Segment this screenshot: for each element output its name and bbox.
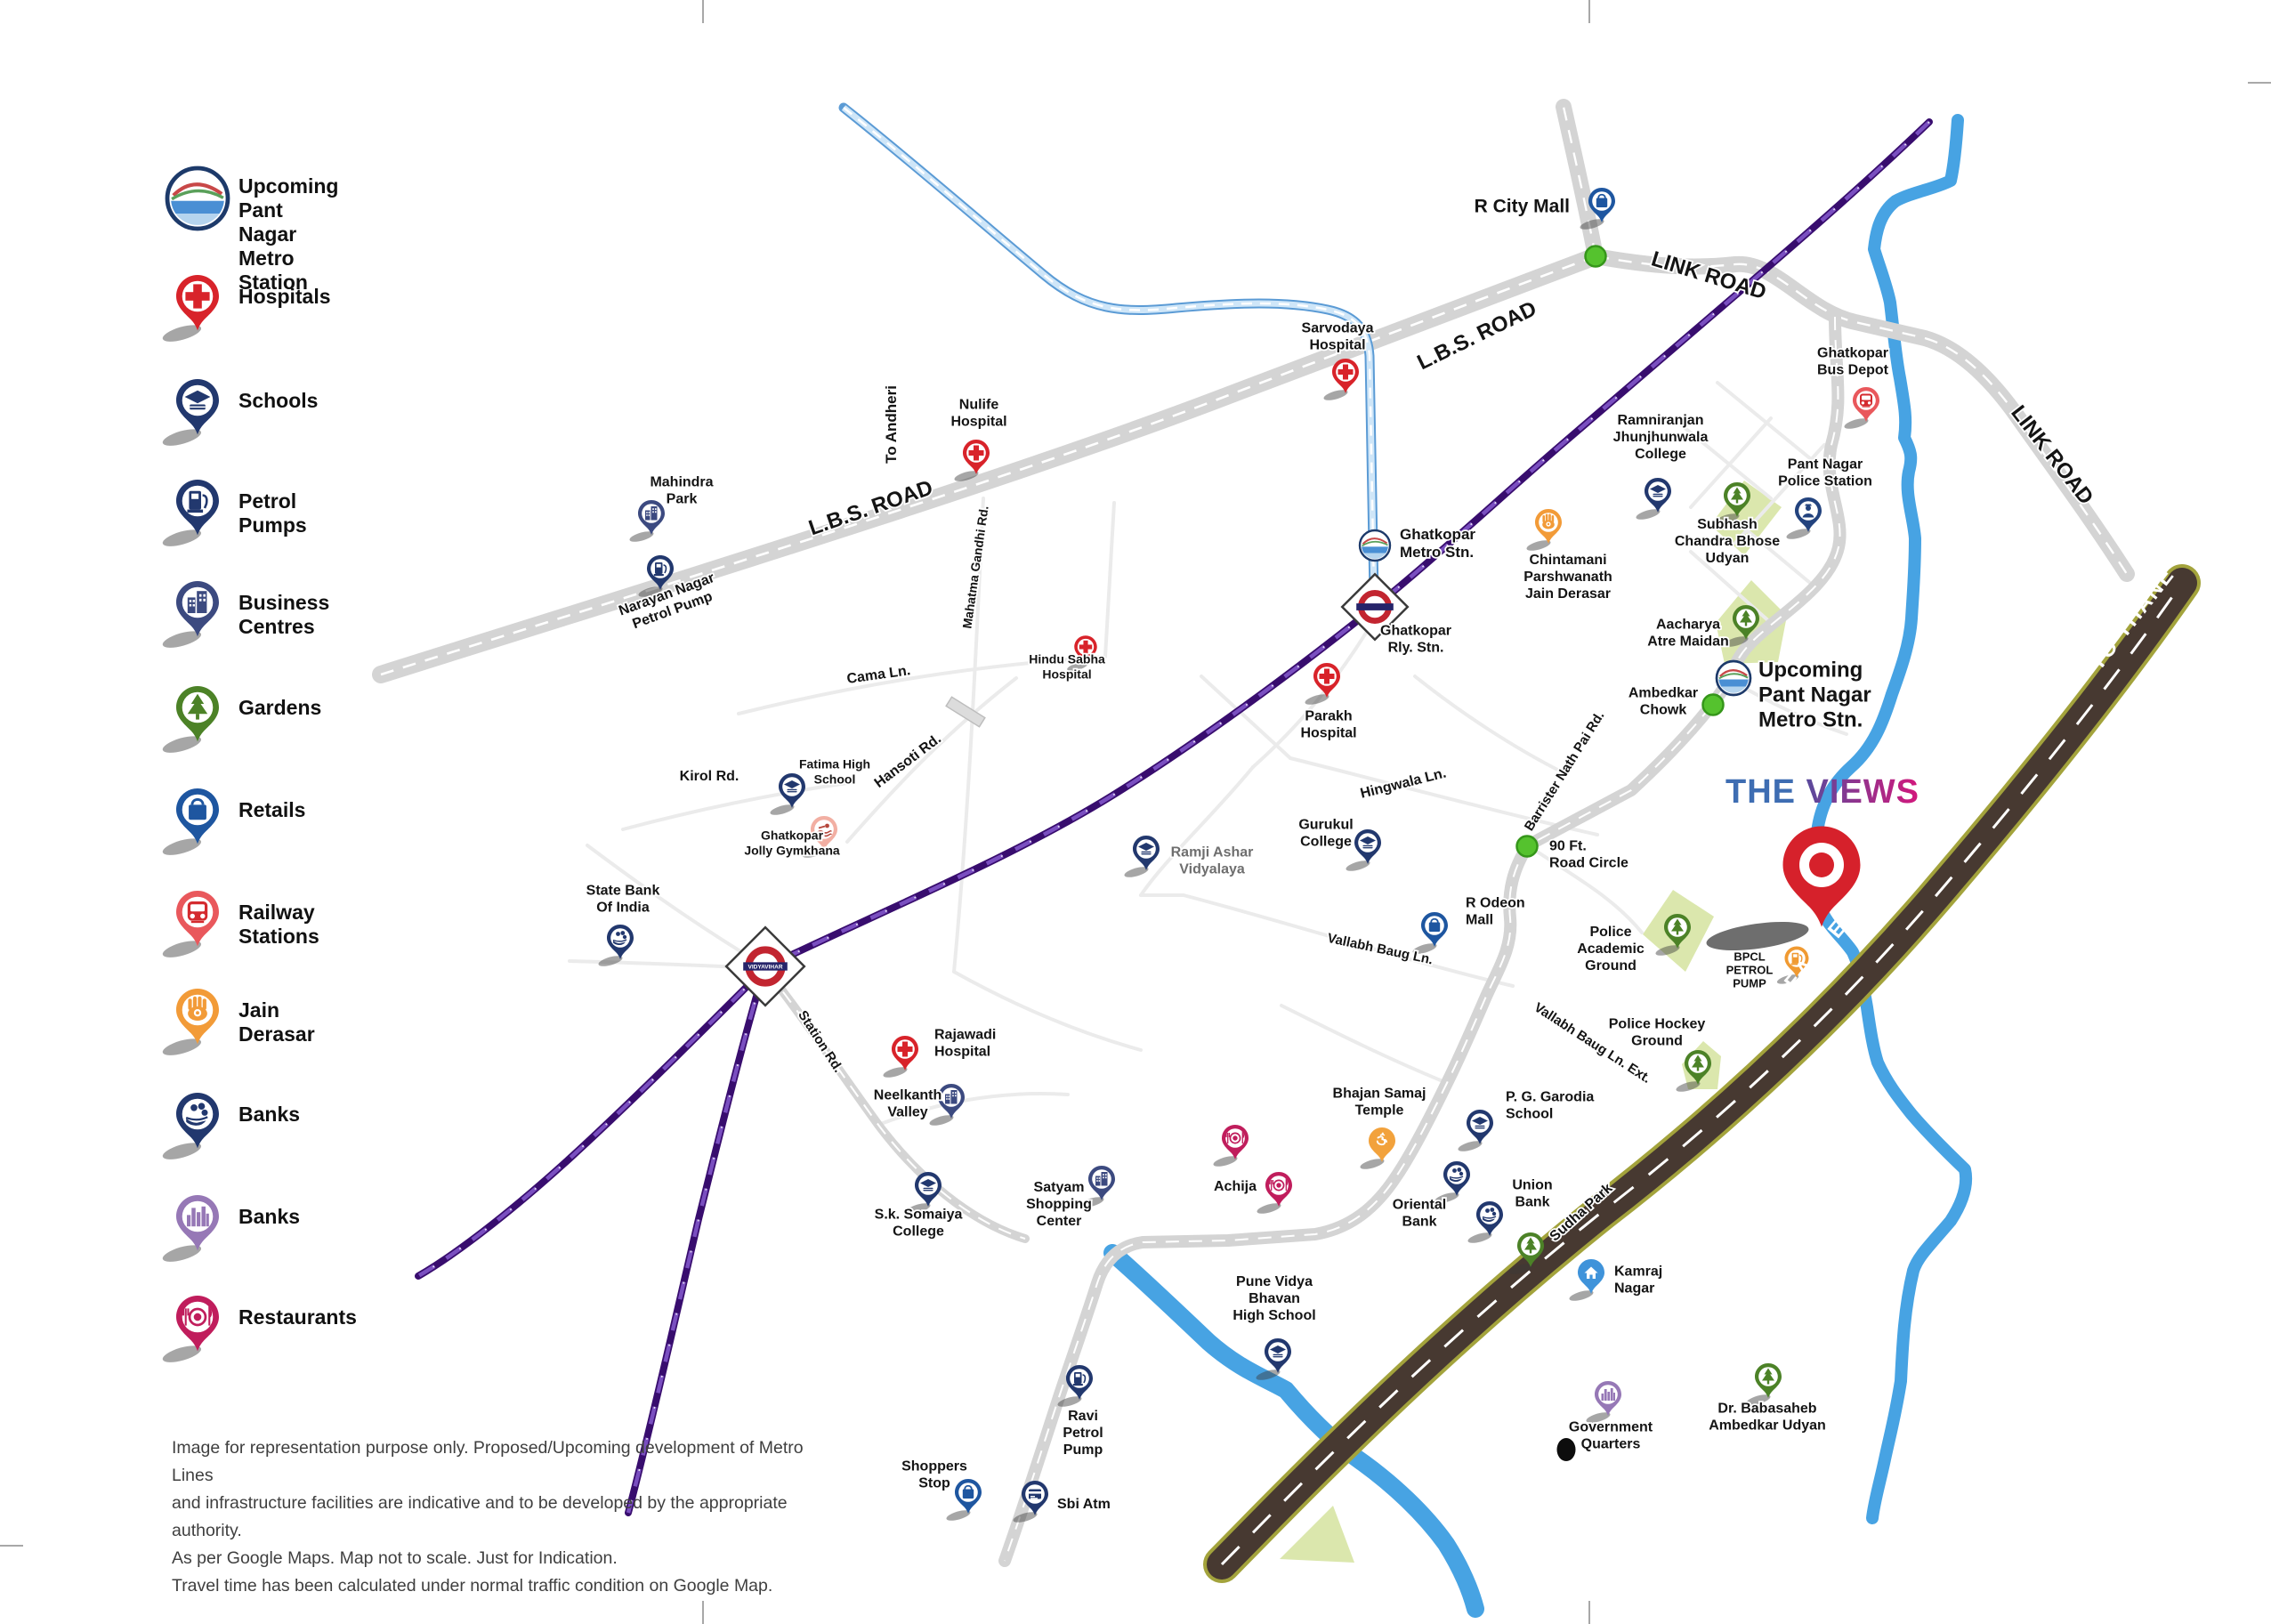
- mahindra-park-pin: [628, 500, 665, 544]
- legend-item-label: Banks: [238, 1205, 300, 1229]
- ambedkar-chowk-label: AmbedkarChowk: [1628, 685, 1698, 717]
- achija-pin: [1212, 1125, 1249, 1168]
- upcoming-pant-nagar-metro-stn-label: UpcomingPant NagarMetro Stn.: [1758, 658, 1871, 732]
- minor-street: [1415, 676, 1566, 774]
- metro-line-1-casing: [844, 108, 1374, 594]
- 90-ft-road-circle-dot: [1517, 836, 1538, 857]
- legend-banks-pin: [161, 1093, 219, 1163]
- police-hockey-ground-label: Police HockeyGround: [1609, 1016, 1706, 1048]
- legend-business-centres-icon: [149, 553, 246, 651]
- chintamani-parshwanath-jain-derasar-label: ChintamaniParshwanathJain Derasar: [1523, 553, 1612, 602]
- rajawadi-hospital-pin: [882, 1036, 918, 1079]
- legend-retails-icon: [149, 761, 246, 859]
- legend-banks-2-pin: [161, 1195, 219, 1265]
- ramniranjan-jhunjhunwala-college-pin: [1635, 478, 1671, 521]
- map: VIDYAVIHAR R City Mall SarvodayaHospital…: [0, 0, 2271, 1624]
- sk-somaiya-college-label: S.k. SomaiyaCollege: [875, 1207, 963, 1239]
- legend-railway-stations-icon: [149, 863, 246, 961]
- railway-branch-south: [628, 972, 764, 1513]
- bpcl-petrol-pump-label: BPCLPETROLPUMP: [1726, 950, 1774, 990]
- location-map-canvas: VIDYAVIHAR R City Mall SarvodayaHospital…: [0, 0, 2271, 1624]
- legend-gardens-icon: [149, 658, 246, 756]
- logo-views: VIEWS: [1806, 773, 1919, 811]
- kamraj-nagar-pin: [1568, 1259, 1604, 1303]
- legend-hospitals-pin: [161, 275, 219, 345]
- fatima-high-school-label: Fatima HighSchool: [799, 757, 870, 787]
- disclaimer-line: As per Google Maps. Map not to scale. Ju…: [172, 1545, 812, 1572]
- satyam-shopping-center-label: SatyamShoppingCenter: [1026, 1180, 1092, 1229]
- svg-text:VIDYAVIHAR: VIDYAVIHAR: [748, 964, 782, 970]
- achija-label: Achija: [1214, 1179, 1257, 1194]
- bhajan-samaj-temple-label: Bhajan SamajTemple: [1333, 1086, 1426, 1118]
- ramji-ashar-vidyalaya-pin: [1123, 836, 1160, 879]
- legend-item-label: Gardens: [238, 696, 321, 720]
- sbi-atm-label: Sbi Atm: [1057, 1497, 1111, 1512]
- bhajan-samaj-temple-pin: [1359, 1127, 1395, 1171]
- ramji-ashar-vidyalaya-label: Ramji AsharVidyalaya: [1171, 844, 1254, 877]
- disclaimer-text: Image for representation purpose only. P…: [172, 1434, 812, 1600]
- r-city-mall-label: R City Mall: [1475, 197, 1570, 217]
- ghatkopar-bus-depot-label: GhatkoparBus Depot: [1817, 345, 1889, 377]
- road-label: Station Rd.: [795, 1008, 845, 1076]
- government-quarters-dot: [1557, 1438, 1576, 1461]
- ghatkopar-bus-depot-pin: [1843, 387, 1879, 431]
- road-label: Vallabh Baug Ln.: [1326, 931, 1435, 968]
- government-quarters-label: GovernmentQuarters: [1569, 1419, 1653, 1451]
- road-label: Kirol Rd.: [680, 769, 739, 784]
- mahindra-park-label: MahindraPark: [650, 474, 713, 506]
- ghatkopar-metro-stn-label: GhatkoparMetro Stn.: [1400, 526, 1475, 561]
- ambedkar-chowk-dot: [1703, 695, 1724, 715]
- minor-street: [1281, 1006, 1447, 1083]
- legend-item-label: Hospitals: [238, 285, 331, 309]
- railway-branch-west-dots: [418, 966, 767, 1276]
- legend-railway-stations-pin: [161, 891, 219, 961]
- dr-babasaheb-ambedkar-udyan-label: Dr. BabasahebAmbedkar Udyan: [1709, 1401, 1826, 1433]
- legend-item-label: Upcoming Pant NagarMetro Station: [238, 174, 338, 295]
- legend-item-label: Railway Stations: [238, 901, 319, 949]
- disclaimer-line: and infrastructure facilities are indica…: [172, 1490, 812, 1545]
- rajawadi-hospital-label: RajawadiHospital: [934, 1027, 996, 1059]
- legend-gardens-pin: [161, 686, 219, 756]
- legend-metro-icon: [167, 168, 228, 229]
- minor-street: [1253, 618, 1375, 767]
- legend-restaurants-icon: [149, 1268, 246, 1366]
- gurukul-college-label: GurukulCollege: [1298, 817, 1353, 849]
- pune-vidya-bhavan-high-school-label: Pune VidyaBhavanHigh School: [1232, 1274, 1315, 1323]
- minor-street: [847, 678, 1016, 842]
- legend-petrol-pumps-pin: [161, 480, 219, 550]
- hindu-sabha-hospital-label: Hindu SabhaHospital: [1029, 652, 1105, 682]
- legend-schools-icon: [149, 351, 246, 449]
- metro-line-1-dash: [844, 108, 1374, 594]
- shoppers-stop-pin: [945, 1479, 982, 1523]
- union-bank-label: UnionBank: [1512, 1177, 1552, 1209]
- road-label: To Andheri: [883, 385, 900, 464]
- union-bank-pin: [1467, 1201, 1503, 1245]
- metro-line-1: [844, 108, 1374, 594]
- disclaimer-line: Travel time has been calculated under no…: [172, 1572, 812, 1600]
- road-label: Mahatma Gandhi Rd.: [959, 505, 990, 629]
- lbs-road: [381, 256, 1596, 675]
- state-bank-of-india-label: State BankOf India: [586, 883, 660, 915]
- lbs-link-junction: [1586, 246, 1606, 267]
- minor-street: [1201, 676, 1290, 758]
- road-label: LINK ROAD: [1648, 246, 1768, 304]
- the-views-logo: THE VIEWS: [1676, 773, 1969, 812]
- aacharya-atre-maidan-label: AacharyaAtre Maidan: [1647, 617, 1729, 649]
- achija-2-pin: [1256, 1172, 1292, 1216]
- pg-garodia-school-label: P. G. GarodiaSchool: [1506, 1089, 1594, 1121]
- legend-petrol-pumps-icon: [149, 452, 246, 550]
- government-quarters-pin: [1585, 1381, 1621, 1425]
- ravi-petrol-pump-label: RaviPetrolPump: [1063, 1409, 1103, 1458]
- road-label: LINK ROAD: [2006, 401, 2097, 510]
- upcoming-pant-nagar-metro-stn-icon: [1717, 661, 1750, 695]
- neelkanth-valley-label: NeelkanthValley: [874, 1087, 942, 1119]
- legend-item-label: Banks: [238, 1103, 300, 1127]
- police-academic-ground-label: PoliceAcademicGround: [1577, 925, 1645, 974]
- legend-restaurants-pin: [161, 1296, 219, 1366]
- nulife-hospital-label: NulifeHospital: [950, 397, 1006, 429]
- road-label: Hansoti Rd.: [872, 731, 944, 791]
- minor-street: [1105, 503, 1114, 657]
- ghatkopar-rly-stn-label: GhatkoparRly. Stn.: [1380, 623, 1451, 655]
- kamraj-nagar-label: KamrajNagar: [1614, 1264, 1662, 1296]
- parakh-hospital-pin: [1304, 663, 1340, 707]
- legend-item-label: Jain Derasar: [238, 998, 315, 1046]
- legend-business-centres-pin: [161, 581, 219, 651]
- pg-garodia-school-pin: [1457, 1110, 1493, 1153]
- legend-item-label: Restaurants: [238, 1305, 357, 1329]
- pune-vidya-bhavan-high-school-pin: [1255, 1338, 1291, 1382]
- legend-metro-station-icon: [149, 149, 246, 247]
- legend-item-label: Petrol Pumps: [238, 489, 307, 537]
- legend-banks-icon: [149, 1065, 246, 1163]
- legend-item-label: Retails: [238, 798, 305, 822]
- legend-retails-pin: [161, 788, 219, 859]
- legend-banks-2-icon: [149, 1168, 246, 1265]
- oriental-bank-label: OrientalBank: [1393, 1197, 1446, 1229]
- legend-item-label: Business Centres: [238, 591, 329, 639]
- pant-nagar-police-station-pin: [1785, 497, 1822, 541]
- 90-ft-road-circle-label: 90 Ft.Road Circle: [1549, 838, 1628, 870]
- legend-schools-pin: [161, 379, 219, 449]
- legend-jain-derasar-icon: [149, 961, 246, 1059]
- railway-branch-west: [418, 966, 767, 1276]
- parakh-hospital-label: ParakhHospital: [1300, 708, 1356, 740]
- logo-the: THE: [1725, 773, 1796, 811]
- disclaimer-line: Image for representation purpose only. P…: [172, 1434, 812, 1490]
- legend-item-label: Schools: [238, 389, 318, 413]
- ramniranjan-jhunjhunwala-college-label: RamniranjanJhunjhunwalaCollege: [1613, 413, 1709, 462]
- railway-branch-west-dash: [418, 966, 767, 1276]
- sbi-atm-pin: [1012, 1481, 1048, 1524]
- chintamani-parshwanath-jain-derasar-pin: [1525, 509, 1562, 553]
- ghatkopar-metro-stn-icon: [1360, 530, 1390, 561]
- legend-jain-derasar-pin: [161, 989, 219, 1059]
- legend-hospitals-icon: [149, 247, 246, 345]
